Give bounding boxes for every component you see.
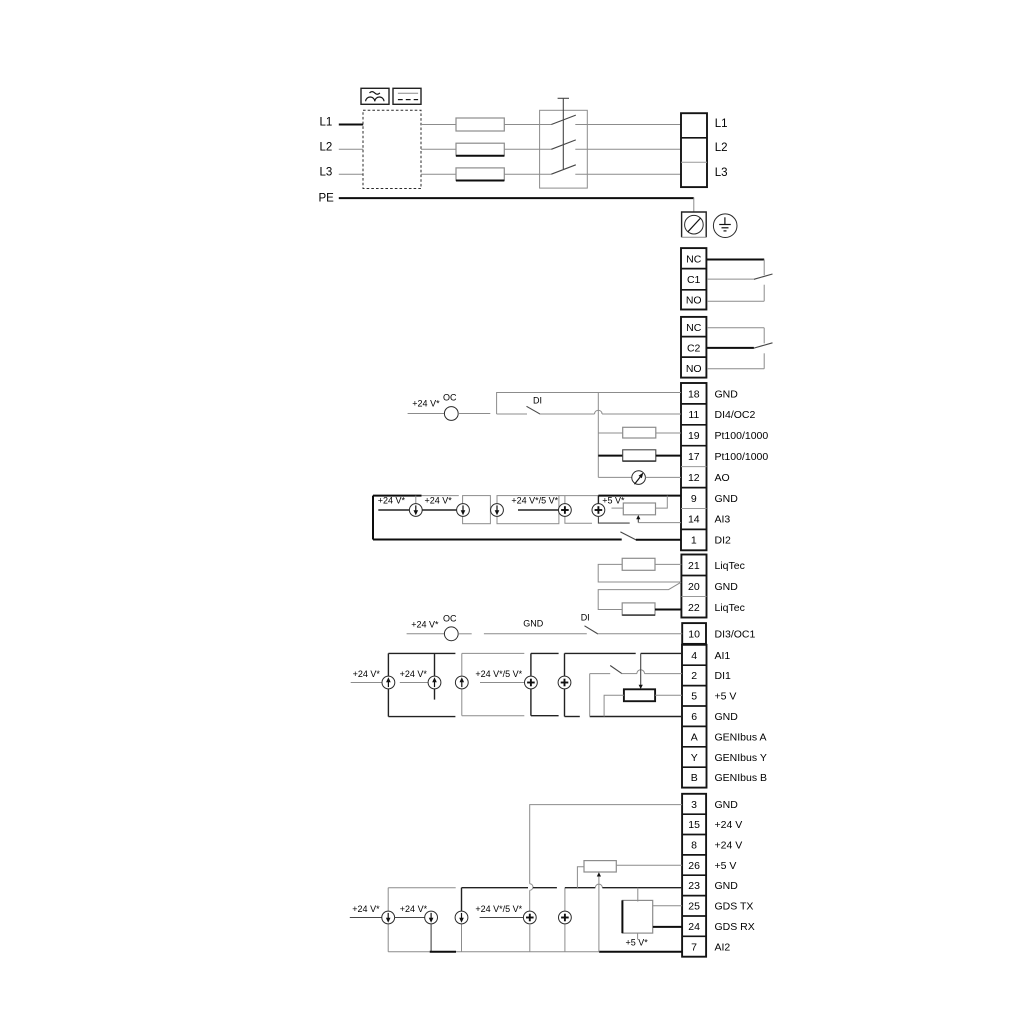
- svg-text:NC: NC: [686, 322, 702, 334]
- svg-text:+24 V*/5 V*: +24 V*/5 V*: [475, 904, 522, 914]
- svg-text:23: 23: [688, 880, 700, 892]
- svg-text:GENIbus A: GENIbus A: [715, 731, 767, 743]
- svg-text:+24 V*: +24 V*: [411, 620, 439, 630]
- svg-text:GND: GND: [715, 880, 739, 892]
- svg-text:11: 11: [688, 409, 699, 421]
- svg-text:GND: GND: [523, 619, 544, 629]
- svg-text:NO: NO: [686, 294, 702, 306]
- svg-text:GENIbus Y: GENIbus Y: [715, 752, 767, 764]
- svg-text:+24 V*: +24 V*: [412, 399, 440, 409]
- svg-text:3: 3: [691, 799, 697, 811]
- svg-text:NC: NC: [686, 253, 702, 265]
- svg-text:LiqTec: LiqTec: [715, 560, 745, 572]
- svg-text:L2: L2: [715, 142, 728, 154]
- svg-text:+24 V*: +24 V*: [425, 495, 453, 505]
- svg-text:GDS RX: GDS RX: [715, 921, 755, 933]
- svg-text:4: 4: [691, 650, 697, 662]
- svg-text:DI4/OC2: DI4/OC2: [715, 409, 756, 421]
- svg-text:AI1: AI1: [715, 650, 731, 662]
- svg-text:5: 5: [691, 691, 697, 703]
- svg-text:2: 2: [691, 670, 697, 682]
- svg-text:24: 24: [688, 921, 700, 933]
- svg-text:GND: GND: [715, 493, 739, 505]
- svg-text:NO: NO: [686, 363, 702, 375]
- svg-text:A: A: [691, 731, 698, 743]
- svg-text:Y: Y: [691, 752, 698, 764]
- svg-text:C1: C1: [687, 274, 701, 286]
- svg-text:Pt100/1000: Pt100/1000: [715, 430, 769, 442]
- svg-text:DI1: DI1: [715, 670, 732, 682]
- svg-text:GDS TX: GDS TX: [715, 901, 754, 913]
- svg-text:AO: AO: [715, 472, 730, 484]
- svg-text:C2: C2: [687, 343, 701, 355]
- svg-text:+24 V*: +24 V*: [400, 904, 428, 914]
- svg-text:L3: L3: [320, 167, 333, 179]
- svg-text:DI: DI: [581, 613, 590, 623]
- svg-text:GND: GND: [715, 711, 739, 723]
- svg-text:20: 20: [688, 581, 700, 593]
- svg-text:19: 19: [688, 430, 700, 442]
- svg-text:21: 21: [688, 560, 700, 572]
- svg-text:12: 12: [688, 472, 700, 484]
- svg-text:8: 8: [691, 840, 697, 852]
- svg-text:+24 V: +24 V: [715, 840, 743, 852]
- svg-text:+24 V*/5 V*: +24 V*/5 V*: [511, 495, 558, 505]
- svg-text:+24 V*: +24 V*: [400, 669, 428, 679]
- svg-text:14: 14: [688, 514, 700, 526]
- svg-text:L1: L1: [320, 116, 333, 128]
- svg-text:PE: PE: [319, 193, 335, 205]
- svg-text:+24 V*: +24 V*: [353, 669, 381, 679]
- svg-text:7: 7: [691, 941, 697, 953]
- svg-text:+24 V*: +24 V*: [352, 904, 380, 914]
- svg-text:9: 9: [691, 493, 697, 505]
- svg-text:B: B: [691, 772, 698, 784]
- svg-text:Pt100/1000: Pt100/1000: [715, 451, 769, 463]
- svg-text:GND: GND: [715, 388, 739, 400]
- svg-text:DI3/OC1: DI3/OC1: [715, 628, 756, 640]
- svg-text:25: 25: [688, 901, 700, 913]
- svg-text:+5 V*: +5 V*: [602, 495, 625, 505]
- svg-text:15: 15: [688, 819, 700, 831]
- svg-text:+24 V*/5 V*: +24 V*/5 V*: [475, 669, 522, 679]
- svg-text:GENIbus B: GENIbus B: [715, 772, 768, 784]
- svg-text:18: 18: [688, 388, 700, 400]
- svg-text:LiqTec: LiqTec: [715, 602, 745, 614]
- svg-text:6: 6: [691, 711, 697, 723]
- svg-text:GND: GND: [715, 581, 739, 593]
- svg-text:L1: L1: [715, 118, 728, 130]
- svg-text:22: 22: [688, 602, 700, 614]
- svg-text:GND: GND: [715, 799, 739, 811]
- svg-text:+5 V: +5 V: [715, 691, 737, 703]
- svg-text:OC: OC: [443, 393, 457, 403]
- svg-text:L3: L3: [715, 167, 728, 179]
- svg-text:10: 10: [688, 628, 700, 640]
- svg-text:+5 V: +5 V: [715, 860, 737, 872]
- svg-text:DI: DI: [533, 396, 542, 406]
- svg-text:+5 V*: +5 V*: [626, 938, 649, 948]
- svg-text:AI2: AI2: [715, 941, 731, 953]
- svg-text:DI2: DI2: [715, 535, 732, 547]
- svg-text:1: 1: [691, 535, 697, 547]
- svg-text:+24 V: +24 V: [715, 819, 743, 831]
- svg-text:OC: OC: [443, 614, 457, 624]
- svg-text:+24 V*: +24 V*: [378, 495, 406, 505]
- svg-text:17: 17: [688, 451, 700, 463]
- svg-text:26: 26: [688, 860, 700, 872]
- svg-text:AI3: AI3: [715, 514, 731, 526]
- svg-text:L2: L2: [320, 142, 333, 154]
